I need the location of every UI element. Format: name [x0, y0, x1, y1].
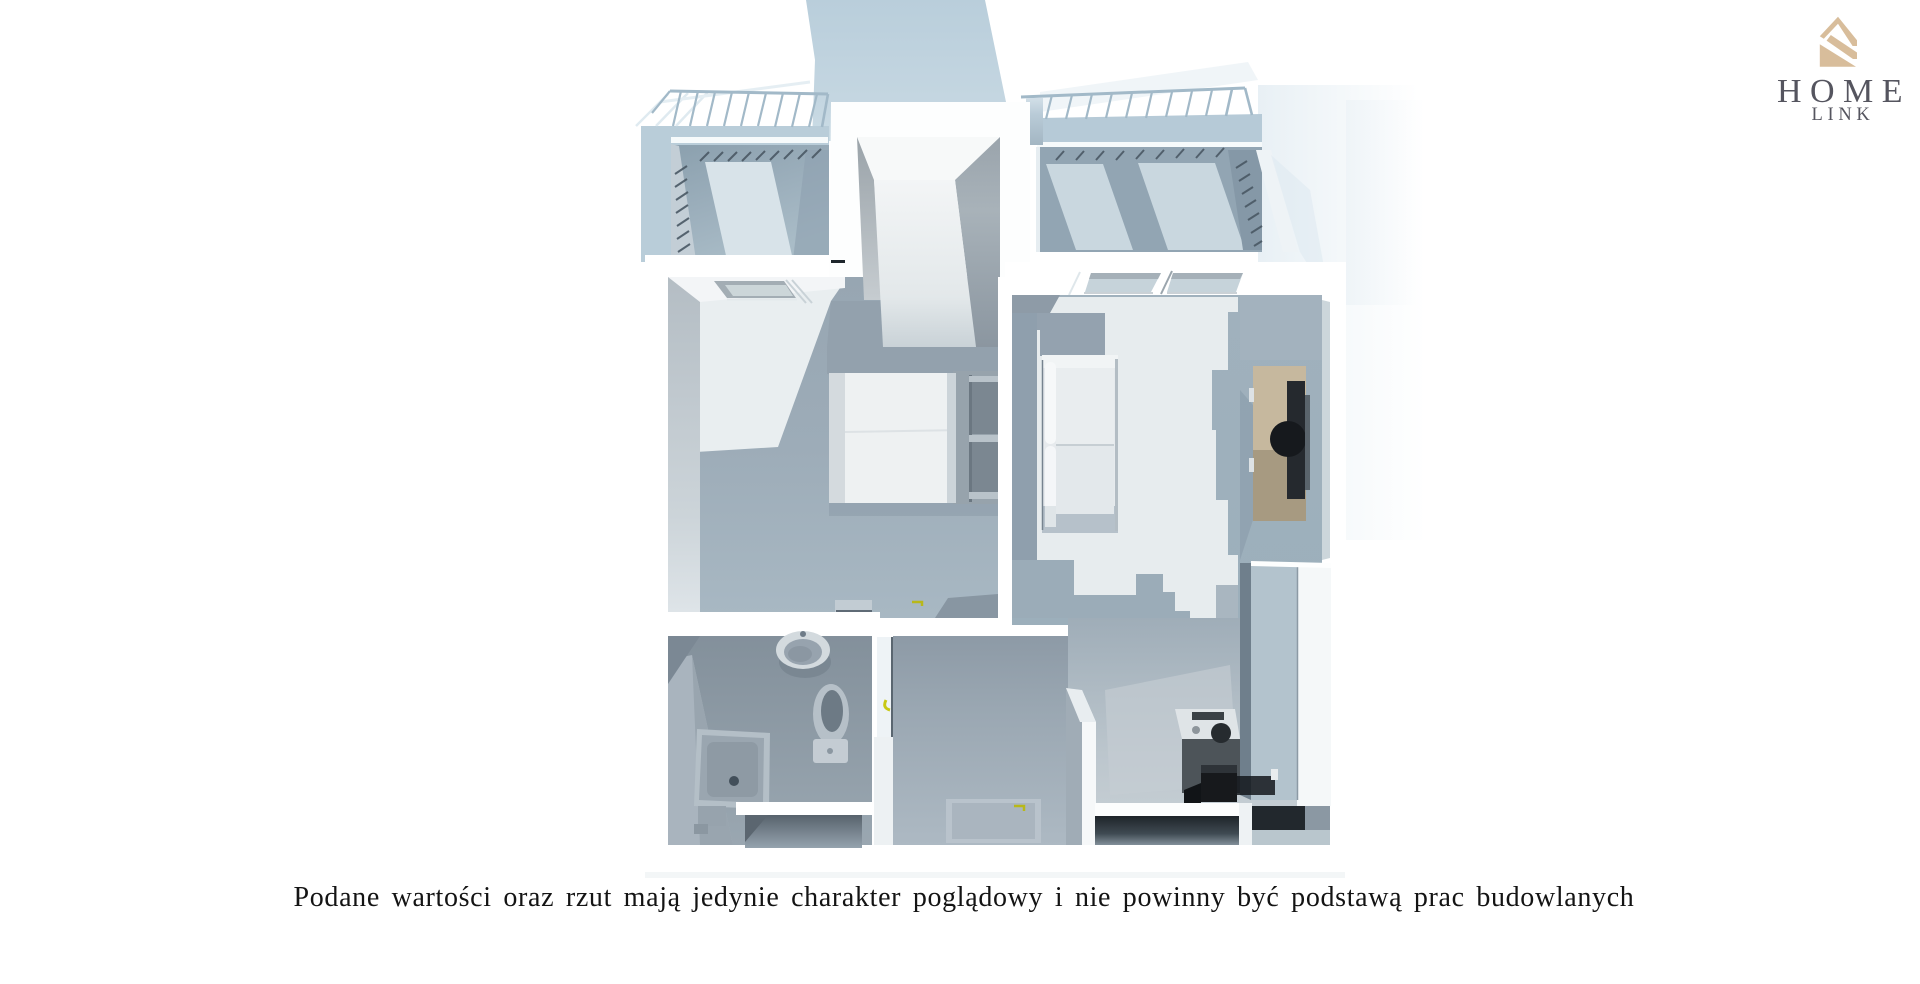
svg-text:Podane wartości oraz rzut mają: Podane wartości oraz rzut mają jedynie c…: [294, 882, 1635, 913]
svg-text:LINK: LINK: [1812, 105, 1875, 125]
